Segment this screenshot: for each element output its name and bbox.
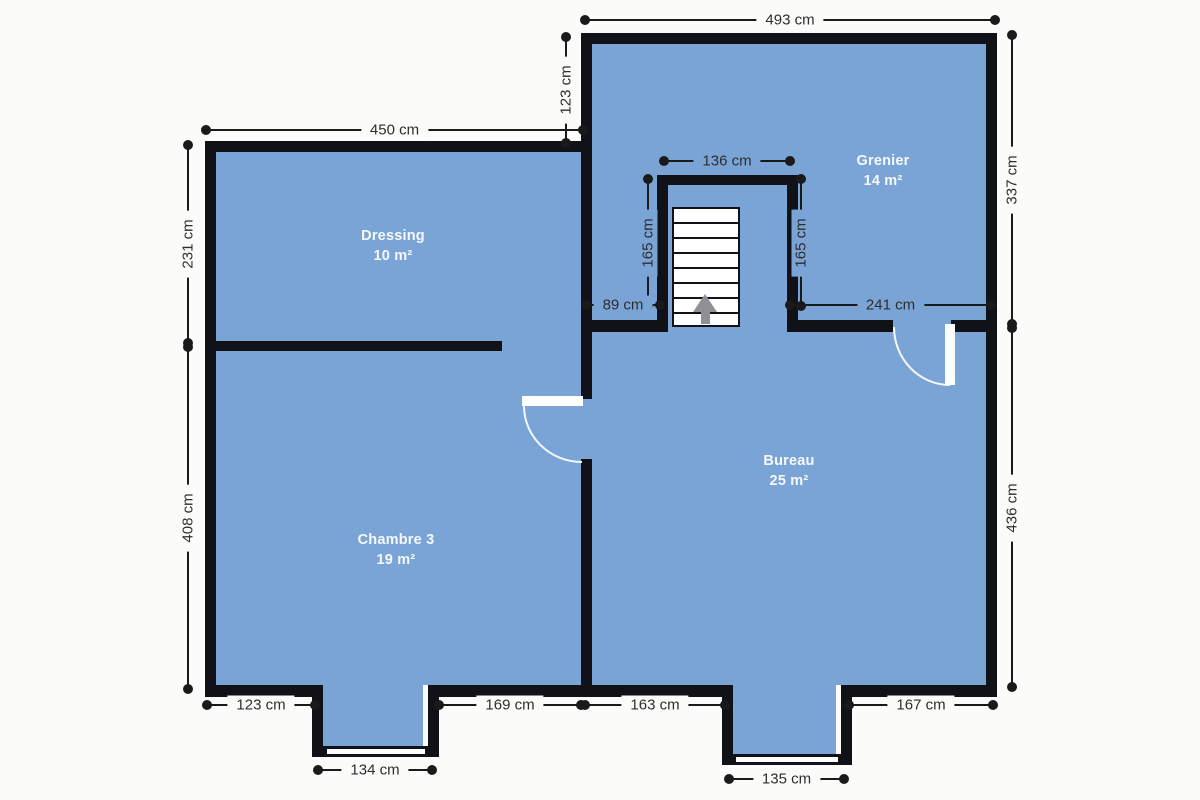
dim-bottom-2: 169 cm	[437, 704, 583, 706]
window-bay-right	[736, 755, 838, 764]
wall-landing-right-a	[787, 320, 893, 332]
wall-bay-right-west	[722, 685, 733, 765]
dim-label: 123 cm	[557, 56, 576, 123]
dim-label: 136 cm	[693, 152, 760, 171]
wall-stair-top	[657, 175, 798, 185]
room-fill-bay-right	[728, 685, 836, 759]
stairs-up-arrow-icon	[693, 294, 717, 312]
door-leaf-bureau	[945, 324, 955, 385]
dim-label: 337 cm	[1003, 146, 1022, 213]
wall-right	[986, 33, 997, 689]
stairs-up-arrow-stem	[701, 311, 710, 324]
door-leaf-chambre	[522, 396, 583, 406]
dim-top-total: 493 cm	[583, 19, 997, 21]
dim-label: 493 cm	[756, 11, 823, 30]
dim-right-upper: 337 cm	[1011, 33, 1013, 326]
dim-label: 135 cm	[753, 770, 820, 789]
room-label-dressing: Dressing 10 m²	[361, 226, 425, 266]
dim-label: 167 cm	[887, 696, 954, 715]
dim-left-lower: 408 cm	[187, 345, 189, 691]
dim-dressing-top: 450 cm	[204, 129, 585, 131]
wall-center-lower	[581, 459, 592, 697]
wall-bay-right-east	[841, 685, 852, 765]
wall-top	[581, 33, 997, 44]
dim-label: 436 cm	[1003, 474, 1022, 541]
room-area: 25 m²	[763, 471, 814, 491]
room-name: Bureau	[763, 451, 814, 471]
dim-bottom-4: 167 cm	[847, 704, 995, 706]
wall-dressing-top	[205, 141, 592, 152]
room-label-bureau: Bureau 25 m²	[763, 451, 814, 491]
dim-label: 408 cm	[179, 484, 198, 551]
dim-label: 450 cm	[361, 121, 428, 140]
dim-label: 231 cm	[179, 210, 198, 277]
room-label-grenier: Grenier 14 m²	[857, 151, 910, 191]
room-area: 10 m²	[361, 246, 425, 266]
dim-label: 89 cm	[594, 296, 653, 315]
wall-dressing-chambre-divider	[205, 341, 502, 351]
dim-label: 163 cm	[621, 696, 688, 715]
dim-left-upper: 231 cm	[187, 143, 189, 345]
dim-bay2-window: 135 cm	[727, 778, 846, 780]
wall-landing-left	[581, 320, 668, 332]
room-name: Grenier	[857, 151, 910, 171]
dim-bottom-1: 123 cm	[205, 704, 317, 706]
dim-label: 123 cm	[227, 696, 294, 715]
dim-landing-right: 241 cm	[788, 304, 993, 306]
dim-right-lower: 436 cm	[1011, 326, 1013, 689]
dim-stair-left: 165 cm	[647, 177, 649, 308]
dim-stair-right: 165 cm	[800, 177, 802, 308]
wall-landing-right-b	[951, 320, 997, 332]
dim-label: 134 cm	[341, 761, 408, 780]
room-name: Chambre 3	[358, 530, 435, 550]
wall-center-upper	[581, 33, 592, 399]
floor-plan: 493 cm 123 cm 450 cm 231 cm 408 cm 337 c…	[0, 0, 1200, 800]
wall-left	[205, 141, 216, 697]
dim-label: 165 cm	[639, 209, 658, 276]
dim-label: 165 cm	[792, 209, 811, 276]
room-name: Dressing	[361, 226, 425, 246]
dim-landing-left: 89 cm	[584, 304, 662, 306]
room-area: 19 m²	[358, 550, 435, 570]
dim-bottom-3: 163 cm	[583, 704, 727, 706]
dim-label: 169 cm	[476, 696, 543, 715]
room-label-chambre3: Chambre 3 19 m²	[358, 530, 435, 570]
dim-bay1-window: 134 cm	[316, 769, 434, 771]
dim-label: 241 cm	[857, 296, 924, 315]
window-bay-left	[327, 747, 425, 756]
dim-stair-width: 136 cm	[662, 160, 792, 162]
room-fill-bay-left	[318, 685, 423, 751]
room-area: 14 m²	[857, 171, 910, 191]
